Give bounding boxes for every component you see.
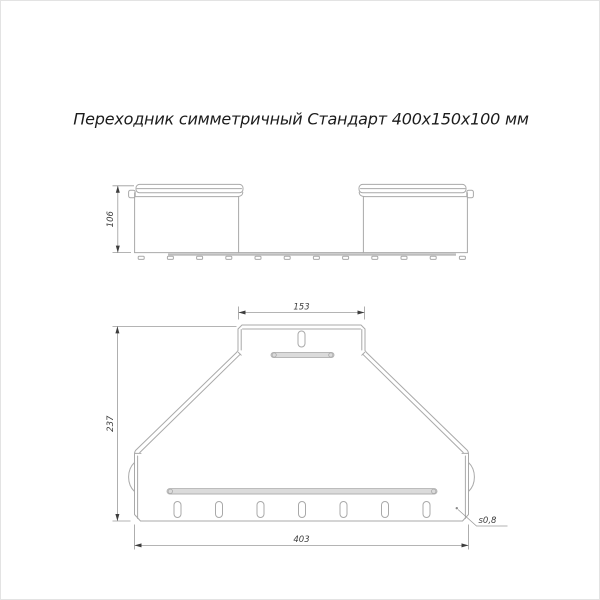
dimension-153-label: 153 [293,303,309,313]
plan-view: 153 237 403 s0,8 [106,303,508,550]
base-slot-tick [226,256,232,259]
dimension-153-arrow-right [358,311,365,315]
bottom-slots [174,502,430,518]
rib-end-dimple [168,489,172,493]
base-slot-tick [313,256,319,259]
dimension-403-arrow-left [135,543,142,547]
dimension-106-arrow-top [116,186,120,193]
right-edge-arc [469,463,475,492]
dimension-237-label: 237 [106,415,116,432]
bottom-slot [216,502,223,518]
left-edge-arc [129,463,135,492]
base-slot-tick [430,256,436,259]
thickness-note-label: s0,8 [479,516,498,526]
base-slot-tick [255,256,261,259]
bottom-slot [299,502,306,518]
base-slot-tick [167,256,173,259]
bottom-slot [382,502,389,518]
side-view: 106 [106,184,473,259]
rib-end-dimple [272,353,276,357]
left-profile [129,184,243,252]
right-profile-walls [363,193,467,253]
bottom-slot [257,502,264,518]
bottom-slot [340,502,347,518]
leader-dot [456,507,458,509]
base-slot-tick [401,256,407,259]
top-mounting-slot [298,331,305,347]
dimension-106-arrow-bottom [116,246,120,253]
embossed-rib-bottom-body [167,489,437,494]
rib-end-dimple [329,353,333,357]
base-slot-tick [459,256,465,259]
drawing-page: Переходник симметричный Стандарт 400х150… [0,0,600,600]
plan-slant-inner-walls [140,354,463,452]
base-slot-tick [284,256,290,259]
dimension-153: 153 [239,303,365,320]
thickness-leader: s0,8 [456,507,508,526]
bottom-slot [174,502,181,518]
embossed-rib-bottom [167,489,437,494]
dimension-237-arrow-bottom [115,514,119,521]
dimension-106-label: 106 [106,211,116,228]
dimension-153-arrow-left [239,311,246,315]
right-profile [359,184,473,252]
base-slot-tick [343,256,349,259]
embossed-rib-top [271,352,334,357]
base-slot-tick [372,256,378,259]
technical-drawing: Переходник симметричный Стандарт 400х150… [0,0,600,600]
dimension-403-label: 403 [293,535,309,545]
left-profile-walls [135,193,239,253]
drawing-title: Переходник симметричный Стандарт 400х150… [73,110,529,129]
dimension-237-arrow-top [115,326,119,333]
base-slot-tick [197,256,203,259]
base-slot-ticks [138,256,465,259]
dimension-403: 403 [135,525,469,550]
bottom-slot [423,502,430,518]
rib-end-dimple [432,489,436,493]
base-slot-tick [138,256,144,259]
embossed-rib-top-body [271,352,334,357]
dimension-403-arrow-right [462,543,469,547]
